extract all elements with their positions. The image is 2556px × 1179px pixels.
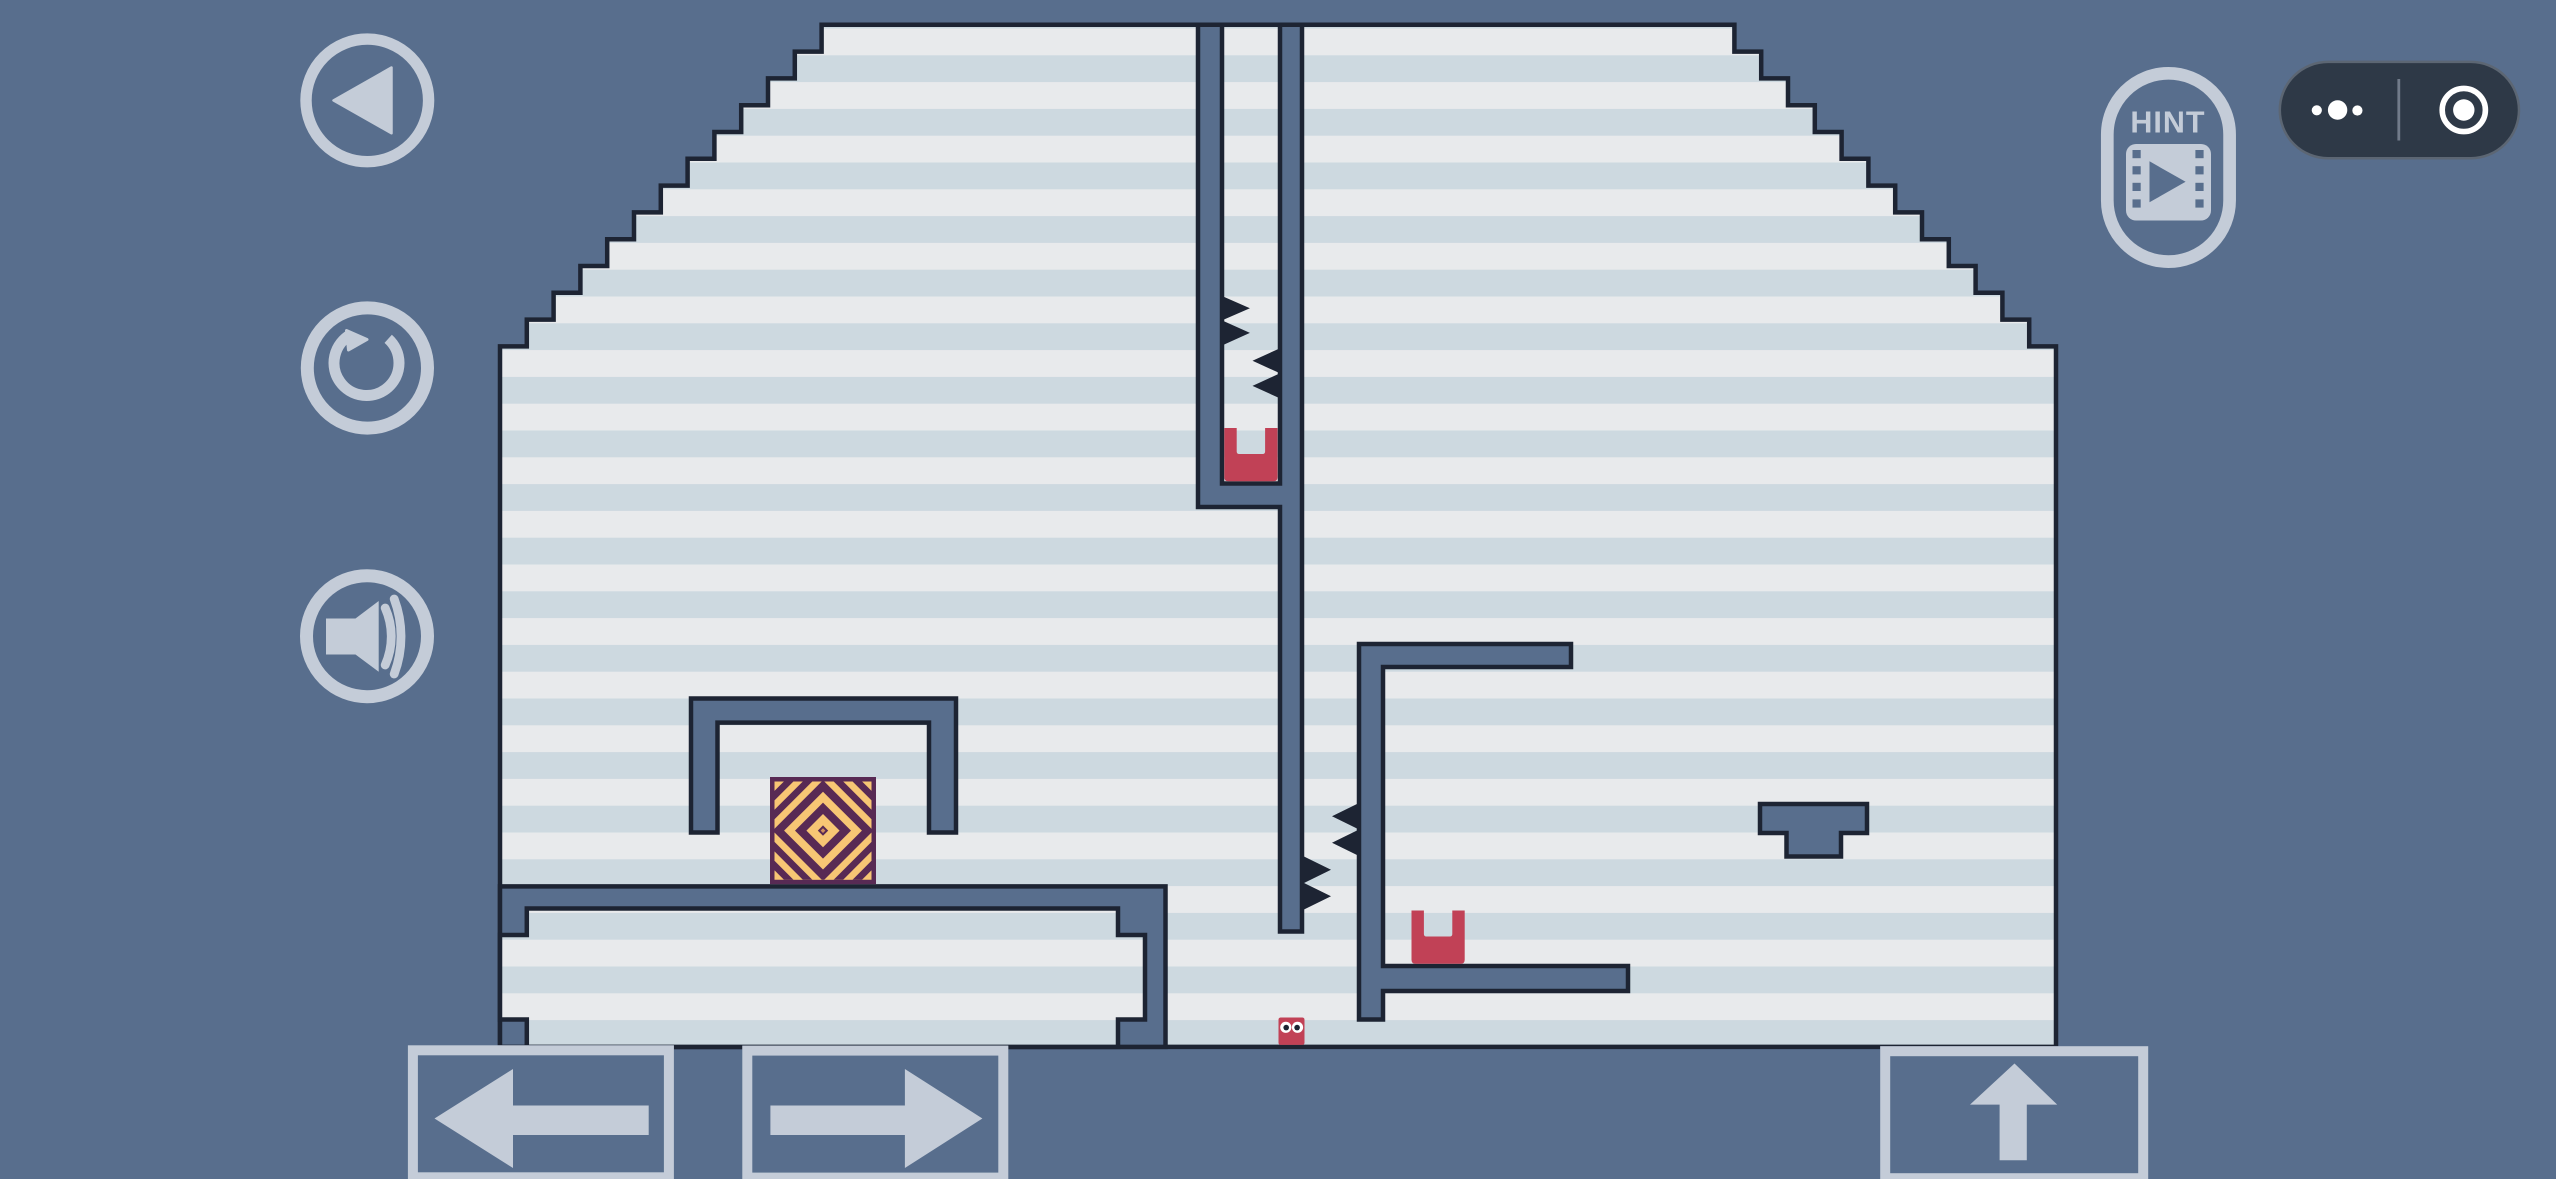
svg-text:HINT: HINT: [2130, 106, 2205, 140]
